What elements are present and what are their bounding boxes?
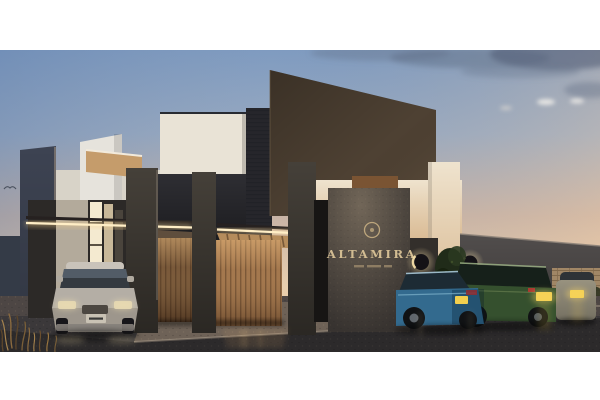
architectural-render-image: ALTAMIRA — [0, 0, 600, 400]
lit-window — [90, 202, 102, 266]
parked-cars-right — [394, 263, 596, 335]
taillight — [466, 290, 477, 295]
sign-title: ALTAMIRA — [326, 247, 417, 261]
photo-area: ALTAMIRA — [0, 50, 600, 352]
side-mirror — [56, 276, 63, 282]
car-silver-front — [51, 262, 139, 340]
taillight — [528, 288, 535, 292]
white-volume — [160, 114, 250, 176]
lit-window — [104, 204, 113, 264]
side-mirror — [127, 276, 134, 282]
scene-svg: ALTAMIRA — [0, 50, 600, 352]
license-plate — [455, 296, 468, 304]
sign-tagline — [354, 265, 392, 267]
wood-beam — [352, 176, 398, 188]
grille — [82, 305, 108, 314]
